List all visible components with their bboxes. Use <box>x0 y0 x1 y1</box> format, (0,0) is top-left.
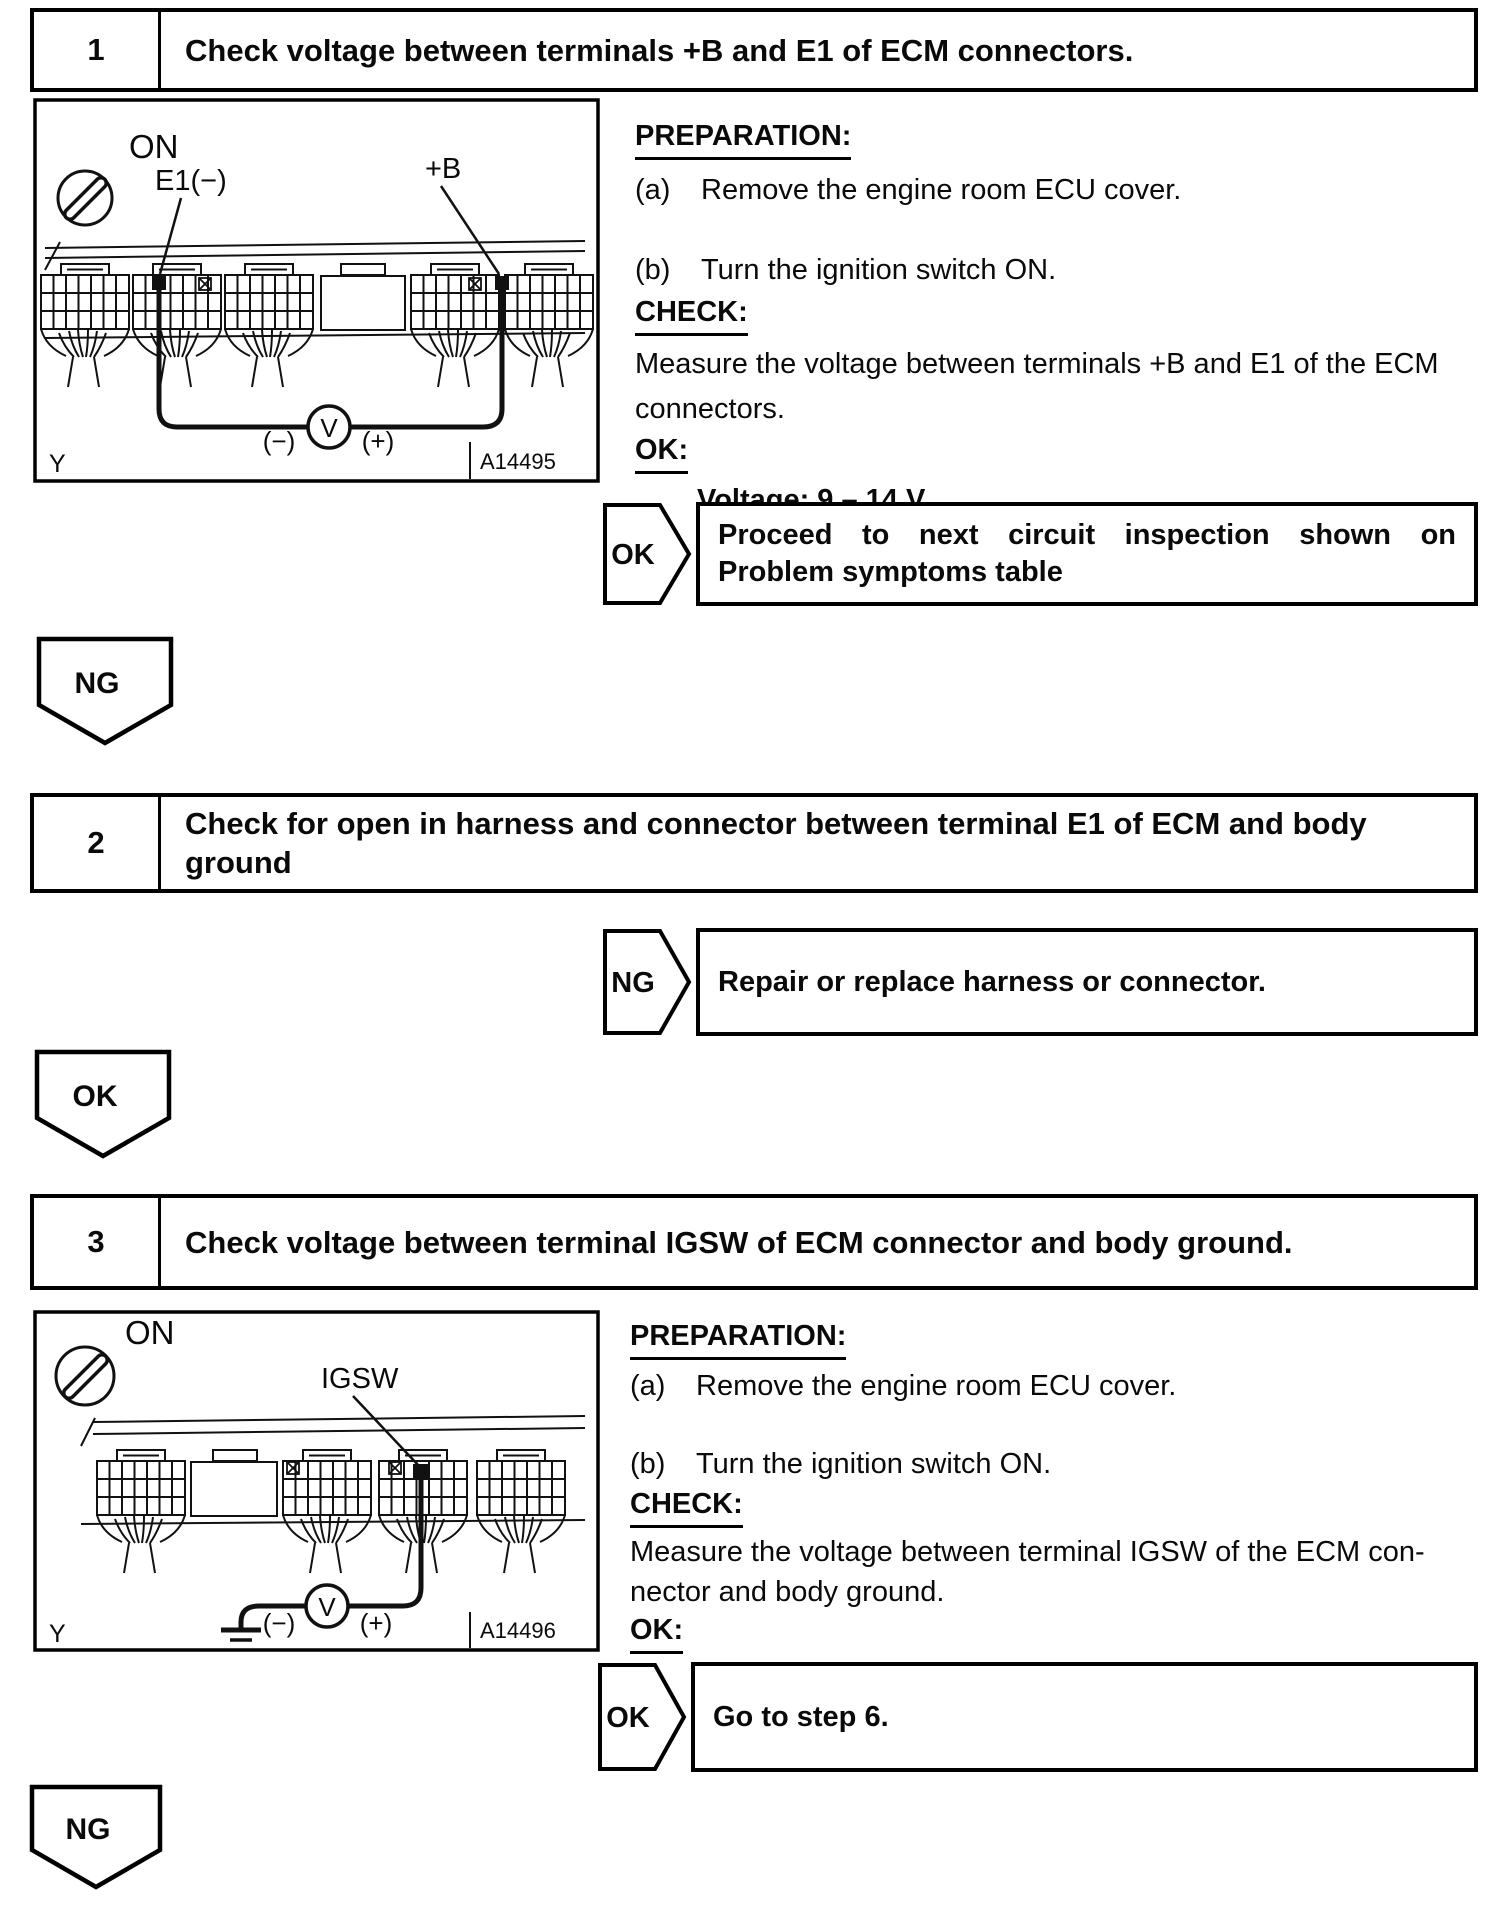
step-1-ok-result-box: Proceed to next circuit inspection shown… <box>696 502 1478 606</box>
ng-branch-badge-2: NG <box>602 928 692 1036</box>
step-1-instructions: PREPARATION: (a) Remove the engine room … <box>635 118 1497 518</box>
ok-branch-badge-3: OK <box>597 1662 687 1772</box>
meter-positive-label: (+) <box>362 426 395 456</box>
meter-negative-label: (−) <box>263 1608 296 1638</box>
step-1-title: Check voltage between terminals +B and E… <box>185 31 1474 70</box>
ok-heading: OK: <box>635 432 688 474</box>
check-heading: CHECK: <box>630 1486 743 1528</box>
step-3-header: 3 Check voltage between terminal IGSW of… <box>30 1194 1478 1290</box>
step-2-header: 2 Check for open in harness and connecto… <box>30 793 1478 893</box>
ok-flow-connector-2: OK <box>33 1048 173 1160</box>
result-text-line-2: Problem symptoms table <box>718 554 1456 591</box>
svg-text:OK: OK <box>73 1080 118 1113</box>
svg-text:OK: OK <box>611 539 655 571</box>
check-heading: CHECK: <box>635 294 748 336</box>
result-text-line-1: Proceed to next circuit inspection shown… <box>718 517 1456 554</box>
check-text-line-2: connectors. <box>635 387 1497 432</box>
svg-text:NG: NG <box>75 667 120 700</box>
preparation-item-a: (a) Remove the engine room ECU cover. <box>630 1368 1496 1404</box>
step-2-title-line-1: Check for open in harness and connector … <box>185 804 1474 843</box>
figure1-corner-mark: Y <box>49 450 66 478</box>
figure1-terminal-b-label: +B <box>425 153 461 185</box>
svg-text:OK: OK <box>606 1702 650 1734</box>
check-text-line-1: Measure the voltage between terminal IGS… <box>630 1532 1496 1572</box>
preparation-heading: PREPARATION: <box>635 118 851 160</box>
step-1-header: 1 Check voltage between terminals +B and… <box>30 8 1478 92</box>
check-text-line-1: Measure the voltage between terminals +B… <box>635 342 1497 387</box>
figure2-ignition-state-label: ON <box>125 1314 175 1351</box>
voltmeter-symbol: V <box>318 1592 336 1622</box>
ng-flow-connector-3: NG <box>28 1783 164 1891</box>
ecm-connector-figure-2: ON IGSW <box>33 1310 600 1652</box>
voltmeter-symbol: V <box>320 413 338 443</box>
step-3-ok-result-box: Go to step 6. <box>691 1662 1478 1772</box>
step-1-number: 1 <box>34 12 161 88</box>
ok-heading: OK: <box>630 1612 683 1654</box>
preparation-item-b: (b) Turn the ignition switch ON. <box>630 1446 1496 1482</box>
troubleshooting-flowchart-page: 1 Check voltage between terminals +B and… <box>0 0 1504 1912</box>
preparation-item-a: (a) Remove the engine room ECU cover. <box>635 172 1497 208</box>
ng-flow-connector-1: NG <box>35 635 175 747</box>
step-2-number: 2 <box>34 797 161 889</box>
step-2-ng-result-box: Repair or replace harness or connector. <box>696 928 1478 1036</box>
step-2-title-line-2: ground <box>185 843 1474 882</box>
figure2-corner-mark: Y <box>49 1620 66 1648</box>
figure1-terminal-e1-label: E1(−) <box>155 165 227 197</box>
ok-branch-badge-1: OK <box>602 502 692 606</box>
svg-text:NG: NG <box>66 1813 111 1846</box>
figure1-ignition-state-label: ON <box>129 128 179 165</box>
figure2-terminal-igsw-label: IGSW <box>321 1363 399 1395</box>
result-text: Repair or replace harness or connector. <box>718 964 1456 1001</box>
step-3-instructions: PREPARATION: (a) Remove the engine room … <box>630 1318 1496 1696</box>
check-text-line-2: nector and body ground. <box>630 1572 1496 1612</box>
preparation-heading: PREPARATION: <box>630 1318 846 1360</box>
figure2-id: A14496 <box>480 1618 556 1643</box>
meter-negative-label: (−) <box>263 426 296 456</box>
step-3-title: Check voltage between terminal IGSW of E… <box>185 1223 1474 1262</box>
svg-text:NG: NG <box>611 967 655 999</box>
step-3-number: 3 <box>34 1198 161 1286</box>
ecm-connector-figure-1: ON E1(−) +B <box>33 98 600 483</box>
figure1-id: A14495 <box>480 449 556 474</box>
preparation-item-b: (b) Turn the ignition switch ON. <box>635 252 1497 288</box>
meter-positive-label: (+) <box>360 1608 393 1638</box>
result-text: Go to step 6. <box>713 1699 1456 1736</box>
